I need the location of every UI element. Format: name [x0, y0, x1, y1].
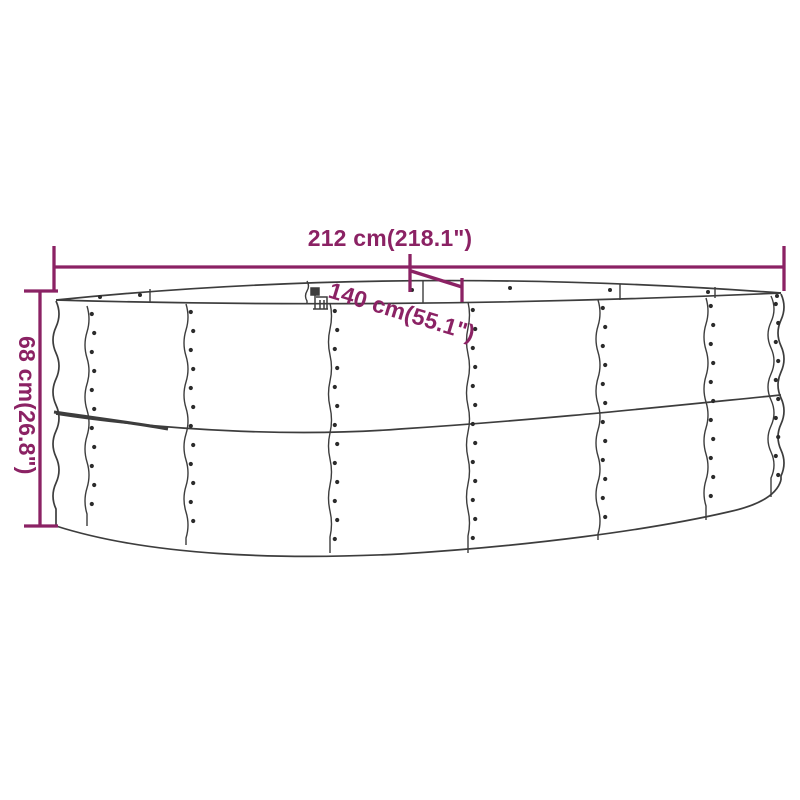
rivet-dot — [601, 458, 605, 462]
rivet-dot — [601, 306, 605, 310]
rivet-dot — [776, 473, 780, 477]
planter-walls — [53, 294, 784, 556]
rivet-dot — [333, 423, 337, 427]
panel-seam-lines — [85, 296, 774, 553]
rivet-dot — [92, 369, 96, 373]
rivet-dot — [92, 445, 96, 449]
rivet-dot — [333, 347, 337, 351]
bracket-head — [311, 288, 319, 295]
rivet-dot — [473, 517, 477, 521]
rivet-dot — [90, 426, 94, 430]
rivet-dot — [711, 475, 715, 479]
rivet-dot — [92, 483, 96, 487]
rivet-dot — [138, 293, 142, 297]
rivet-dot — [473, 365, 477, 369]
rivet-dot — [335, 366, 339, 370]
rivet-dot — [508, 286, 512, 290]
rivet-dot — [711, 437, 715, 441]
rivet-dot — [335, 480, 339, 484]
rivet-dot — [189, 310, 193, 314]
rivet-dot — [333, 385, 337, 389]
drawing-stroke — [56, 293, 781, 304]
rivet-dot — [473, 441, 477, 445]
rivet-dot — [774, 340, 778, 344]
rivet-dot — [333, 499, 337, 503]
rivet-dot — [711, 399, 715, 403]
rivet-dot — [706, 290, 710, 294]
rivet-dot — [603, 477, 607, 481]
rivet-dot — [90, 388, 94, 392]
rivet-dot — [333, 309, 337, 313]
drawing-stroke — [704, 298, 708, 520]
drawing-stroke — [306, 281, 309, 303]
rivet-dot — [603, 515, 607, 519]
rivet-dot — [471, 384, 475, 388]
rivet-dot — [775, 294, 779, 298]
rivet-dot — [601, 382, 605, 386]
rivet-dot — [90, 502, 94, 506]
rivet-dot — [709, 418, 713, 422]
rivet-dot — [774, 454, 778, 458]
rivet-dot — [189, 424, 193, 428]
rivet-dot — [776, 397, 780, 401]
rivet-dot — [709, 304, 713, 308]
rivet-dot — [189, 462, 193, 466]
rivet-dot — [335, 404, 339, 408]
rivet-dot — [189, 386, 193, 390]
rivet-dot — [711, 323, 715, 327]
rivet-dot — [189, 348, 193, 352]
rivet-dot — [191, 519, 195, 523]
rivet-dot — [333, 461, 337, 465]
drawing-stroke — [56, 395, 781, 432]
rivet-dot — [191, 329, 195, 333]
rivet-dot — [333, 537, 337, 541]
rivet-dot — [709, 494, 713, 498]
drawing-stroke — [54, 412, 168, 429]
rivet-dot — [601, 344, 605, 348]
rivet-dot — [471, 536, 475, 540]
rivet-dot — [473, 403, 477, 407]
planter-line-drawing — [0, 0, 800, 800]
drawing-stroke — [596, 300, 600, 540]
rivet-dot — [92, 331, 96, 335]
dimension-lines — [24, 246, 784, 526]
rivet-dot — [774, 416, 778, 420]
rivet-dot — [774, 302, 778, 306]
rivet-dot — [603, 439, 607, 443]
rivet-dot — [709, 456, 713, 460]
rivet-dot — [90, 464, 94, 468]
rivet-dot — [473, 479, 477, 483]
rivet-dot — [471, 346, 475, 350]
diagram-canvas: 212 cm(218.1") 140 cm(55.1") 68 cm(26.8"… — [0, 0, 800, 800]
planter-rim — [56, 281, 781, 304]
rivet-dot — [90, 312, 94, 316]
rivet-dot — [776, 359, 780, 363]
rivet-dot — [709, 342, 713, 346]
rivet-dot — [191, 367, 195, 371]
rivet-dot — [601, 496, 605, 500]
rivet-dot — [189, 500, 193, 504]
rivet-dot — [471, 498, 475, 502]
drawing-stroke — [329, 303, 332, 553]
rivet-dot — [776, 321, 780, 325]
rivet-dot — [98, 295, 102, 299]
rivet-dot — [335, 328, 339, 332]
rivet-dot — [471, 460, 475, 464]
rivet-dot — [601, 420, 605, 424]
height-dimension-label: 68 cm(26.8") — [15, 336, 39, 475]
drawing-stroke — [184, 304, 188, 545]
rivet-dot — [335, 518, 339, 522]
rivet-dot — [191, 405, 195, 409]
rivet-dot — [603, 325, 607, 329]
rivet-dot — [191, 443, 195, 447]
rivet-dot — [774, 378, 778, 382]
width-dimension-line — [411, 271, 462, 287]
rivet-dot — [603, 401, 607, 405]
length-dimension-label: 212 cm(218.1") — [250, 226, 530, 250]
rivet-dot — [776, 435, 780, 439]
rivet-dot — [471, 422, 475, 426]
rivet-dot — [709, 380, 713, 384]
rivet-dot — [711, 361, 715, 365]
rivet-dot — [191, 481, 195, 485]
rivet-dot — [471, 308, 475, 312]
rivet-dot — [90, 350, 94, 354]
rivet-dot — [335, 442, 339, 446]
rivet-dot — [603, 363, 607, 367]
rivet-dot — [92, 407, 96, 411]
rivet-dot — [608, 288, 612, 292]
drawing-stroke — [56, 480, 781, 556]
